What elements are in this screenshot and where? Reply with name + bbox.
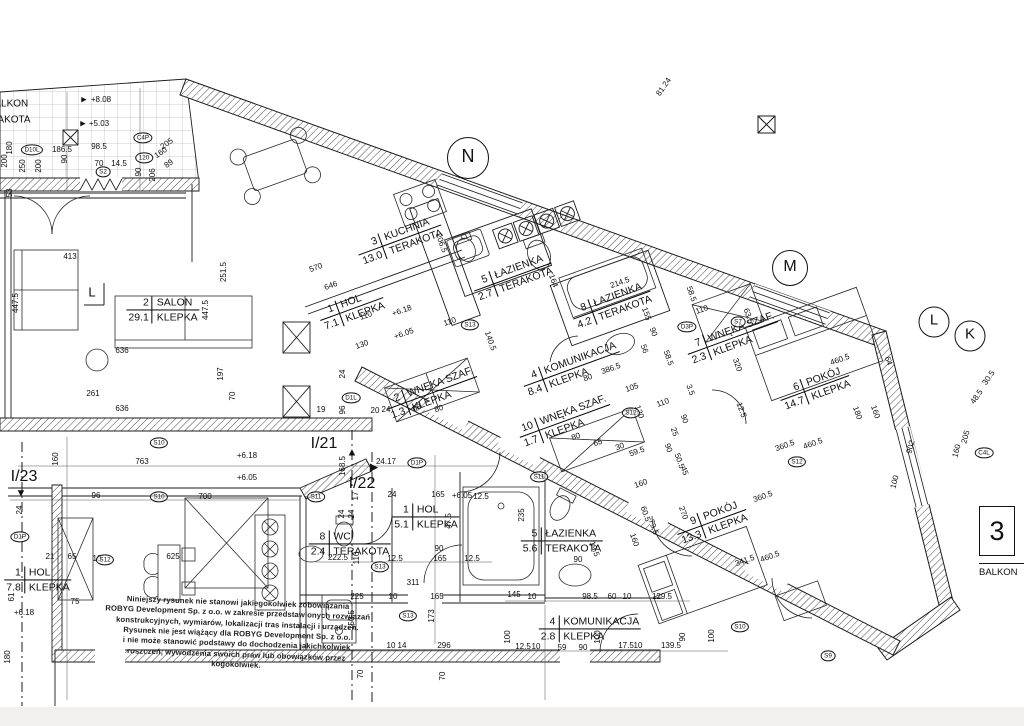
legal-disclaimer: Niniejszy rysunek nie stanowi jakiegokol… — [102, 593, 372, 674]
adjacent-unit-label: BALKON — [979, 563, 1024, 578]
sheet-edge-tag: 3 BALKON — [979, 506, 1024, 578]
floor-plan-sheet: 3 KUCHNIA 13.0 TERAKOTA 5 ŁAZIENKA 2.7 T… — [0, 0, 1024, 726]
exterior-walls — [180, 79, 960, 660]
balcony-structure — [0, 79, 199, 191]
page-edge — [0, 707, 1024, 726]
adjacent-unit-number: 3 — [979, 506, 1015, 556]
upper-unit-partitions — [410, 199, 670, 346]
